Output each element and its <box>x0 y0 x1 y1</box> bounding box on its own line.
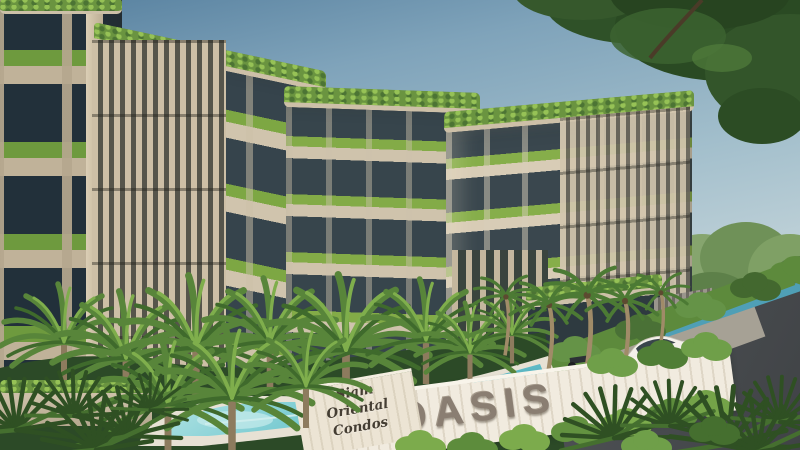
tree-canopy <box>513 0 800 144</box>
foreground-layer <box>0 0 800 450</box>
foreground-plants-left <box>0 366 193 450</box>
foreground-plants-right <box>553 369 800 450</box>
architectural-rendering: OASIS Siam Oriental Condos <box>0 0 800 450</box>
